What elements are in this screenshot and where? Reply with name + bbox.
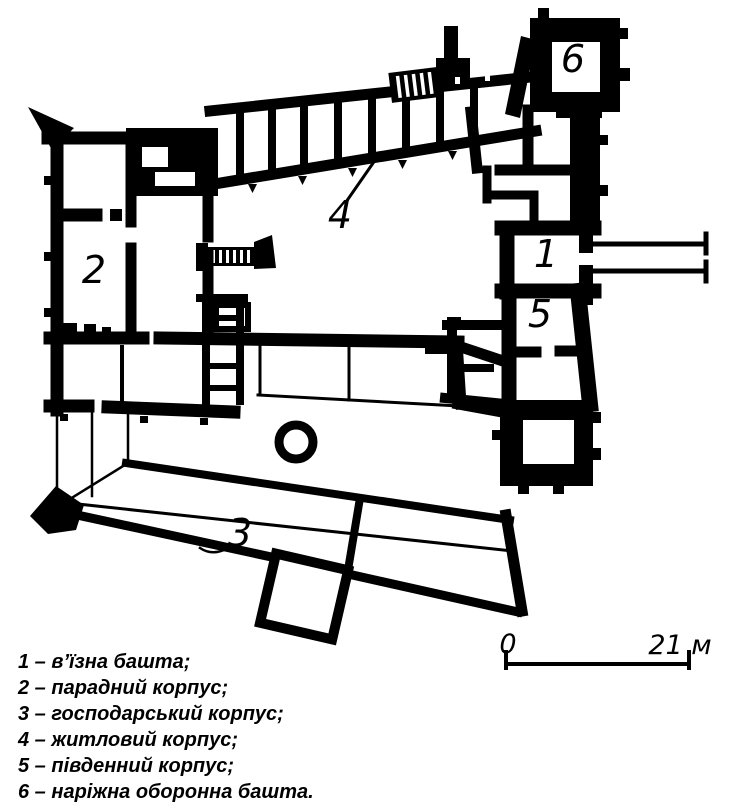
building-3-annex xyxy=(260,554,348,640)
yard-walls xyxy=(57,412,128,507)
bridge-lines xyxy=(593,234,706,281)
scale-length-label: 21 м xyxy=(648,630,711,661)
legend-item-6: 6 – наріжна оборонна башта. xyxy=(18,779,314,805)
scale-zero-label: 0 xyxy=(499,629,516,660)
se-tower xyxy=(492,400,601,494)
plan-label-1: 1 xyxy=(534,232,558,276)
yard-thin-lines xyxy=(57,412,128,507)
middle-range xyxy=(50,317,506,425)
legend-item-5: 5 – південний корпус; xyxy=(18,753,314,779)
legend-item-3: 3 – господарський корпус; xyxy=(18,701,314,727)
staircase xyxy=(196,190,276,401)
legend-item-4: 4 – житловий корпус; xyxy=(18,727,314,753)
well-circle xyxy=(279,425,313,459)
plan-label-5: 5 xyxy=(528,292,552,336)
building-3-east-wall xyxy=(506,515,522,611)
legend-item-1: 1 – в’їзна башта; xyxy=(18,649,314,675)
plan-label-3: 3 xyxy=(228,511,252,555)
plan-label-4: 4 xyxy=(328,193,352,237)
legend-item-2: 2 – парадний корпус; xyxy=(18,675,314,701)
annex-square xyxy=(260,554,348,640)
gate-complex xyxy=(471,98,608,230)
east-curtain-wall xyxy=(556,98,608,230)
scanned-castle-plan-page: 2 4 6 1 5 xyxy=(0,0,741,811)
plan-label-2: 2 xyxy=(82,248,106,292)
bridge xyxy=(593,234,706,281)
plan-label-6: 6 xyxy=(561,37,585,81)
gate-complex-partitions xyxy=(487,170,534,226)
southern-building-5: 5 xyxy=(509,291,590,404)
legend: 1 – в’їзна башта; 2 – парадний корпус; 3… xyxy=(18,649,314,805)
middle-range-main-walls xyxy=(50,338,458,412)
well xyxy=(279,425,313,459)
scale-bar: 0 21 м xyxy=(499,629,711,668)
north-stair-hatch xyxy=(388,67,439,103)
building-5-partition xyxy=(509,351,586,352)
se-tower-room xyxy=(523,420,574,464)
household-building-3: 3 xyxy=(54,463,522,639)
